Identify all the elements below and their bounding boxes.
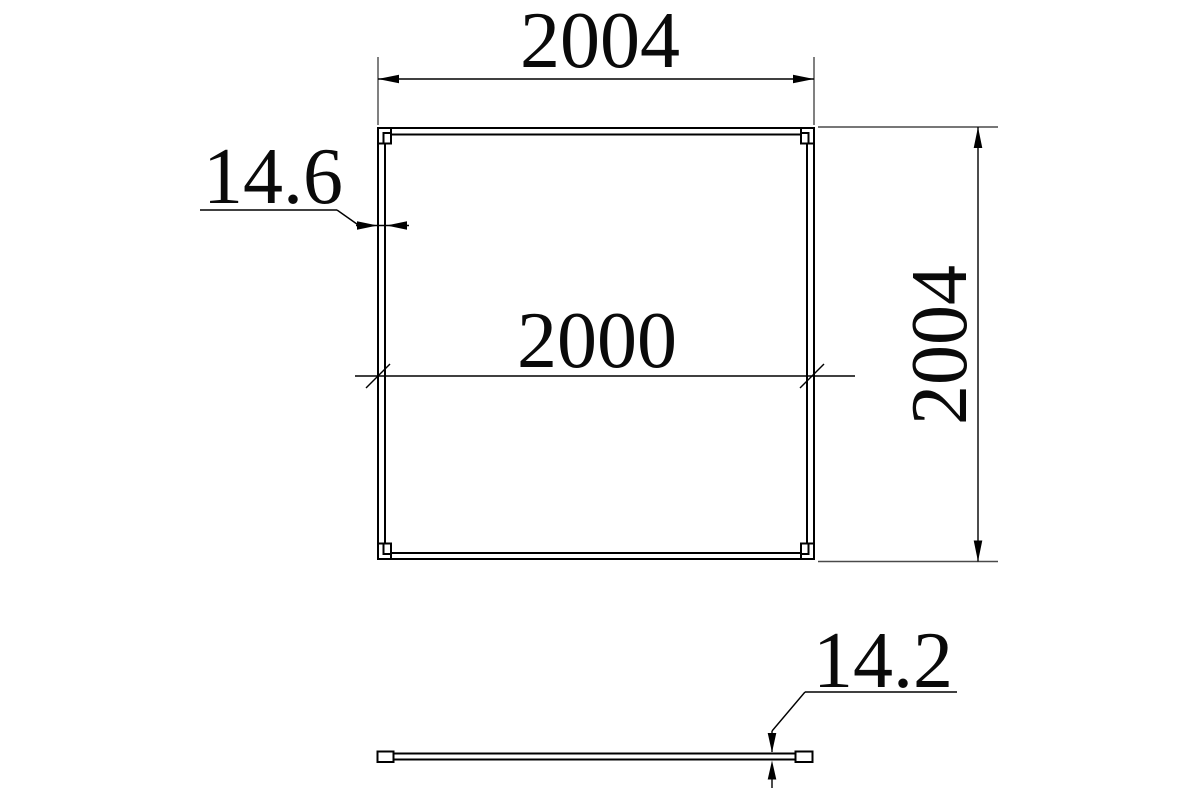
overall-height-dim-text: 2004 xyxy=(896,265,984,425)
arrowhead-top-icon xyxy=(974,127,983,148)
corner-cleat-top-right xyxy=(801,128,814,144)
technical-drawing-canvas: 2004 2004 2000 14.6 xyxy=(0,0,1200,800)
arrowhead-pointing-down-icon xyxy=(768,733,777,753)
arrowhead-bottom-icon xyxy=(974,541,983,562)
arrowhead-pointing-left-icon xyxy=(387,221,408,230)
frame-dimension-drawing: 2004 2004 2000 14.6 xyxy=(0,0,1200,800)
corner-cleat-top-left xyxy=(378,128,391,144)
leader-diagonal xyxy=(772,692,805,731)
panel-end-cap-right xyxy=(796,752,813,763)
inner-width-dim-text: 2000 xyxy=(517,297,677,385)
overall-height-dimension: 2004 xyxy=(818,127,998,562)
side-view-panel xyxy=(378,752,813,763)
overall-width-dim-text: 2004 xyxy=(520,0,680,85)
profile-thickness-text: 14.6 xyxy=(203,133,343,221)
corner-cleat-bottom-right xyxy=(801,544,814,560)
arrowhead-right-icon xyxy=(793,75,814,84)
arrowhead-pointing-right-icon xyxy=(357,221,378,230)
arrowhead-pointing-up-icon xyxy=(768,761,777,780)
panel-body xyxy=(393,754,796,760)
corner-cleat-bottom-left xyxy=(378,544,391,560)
arrowhead-left-icon xyxy=(378,75,399,84)
overall-width-dimension: 2004 xyxy=(378,0,814,125)
panel-end-cap-left xyxy=(378,752,394,763)
inner-width-dimension: 2000 xyxy=(355,297,855,388)
